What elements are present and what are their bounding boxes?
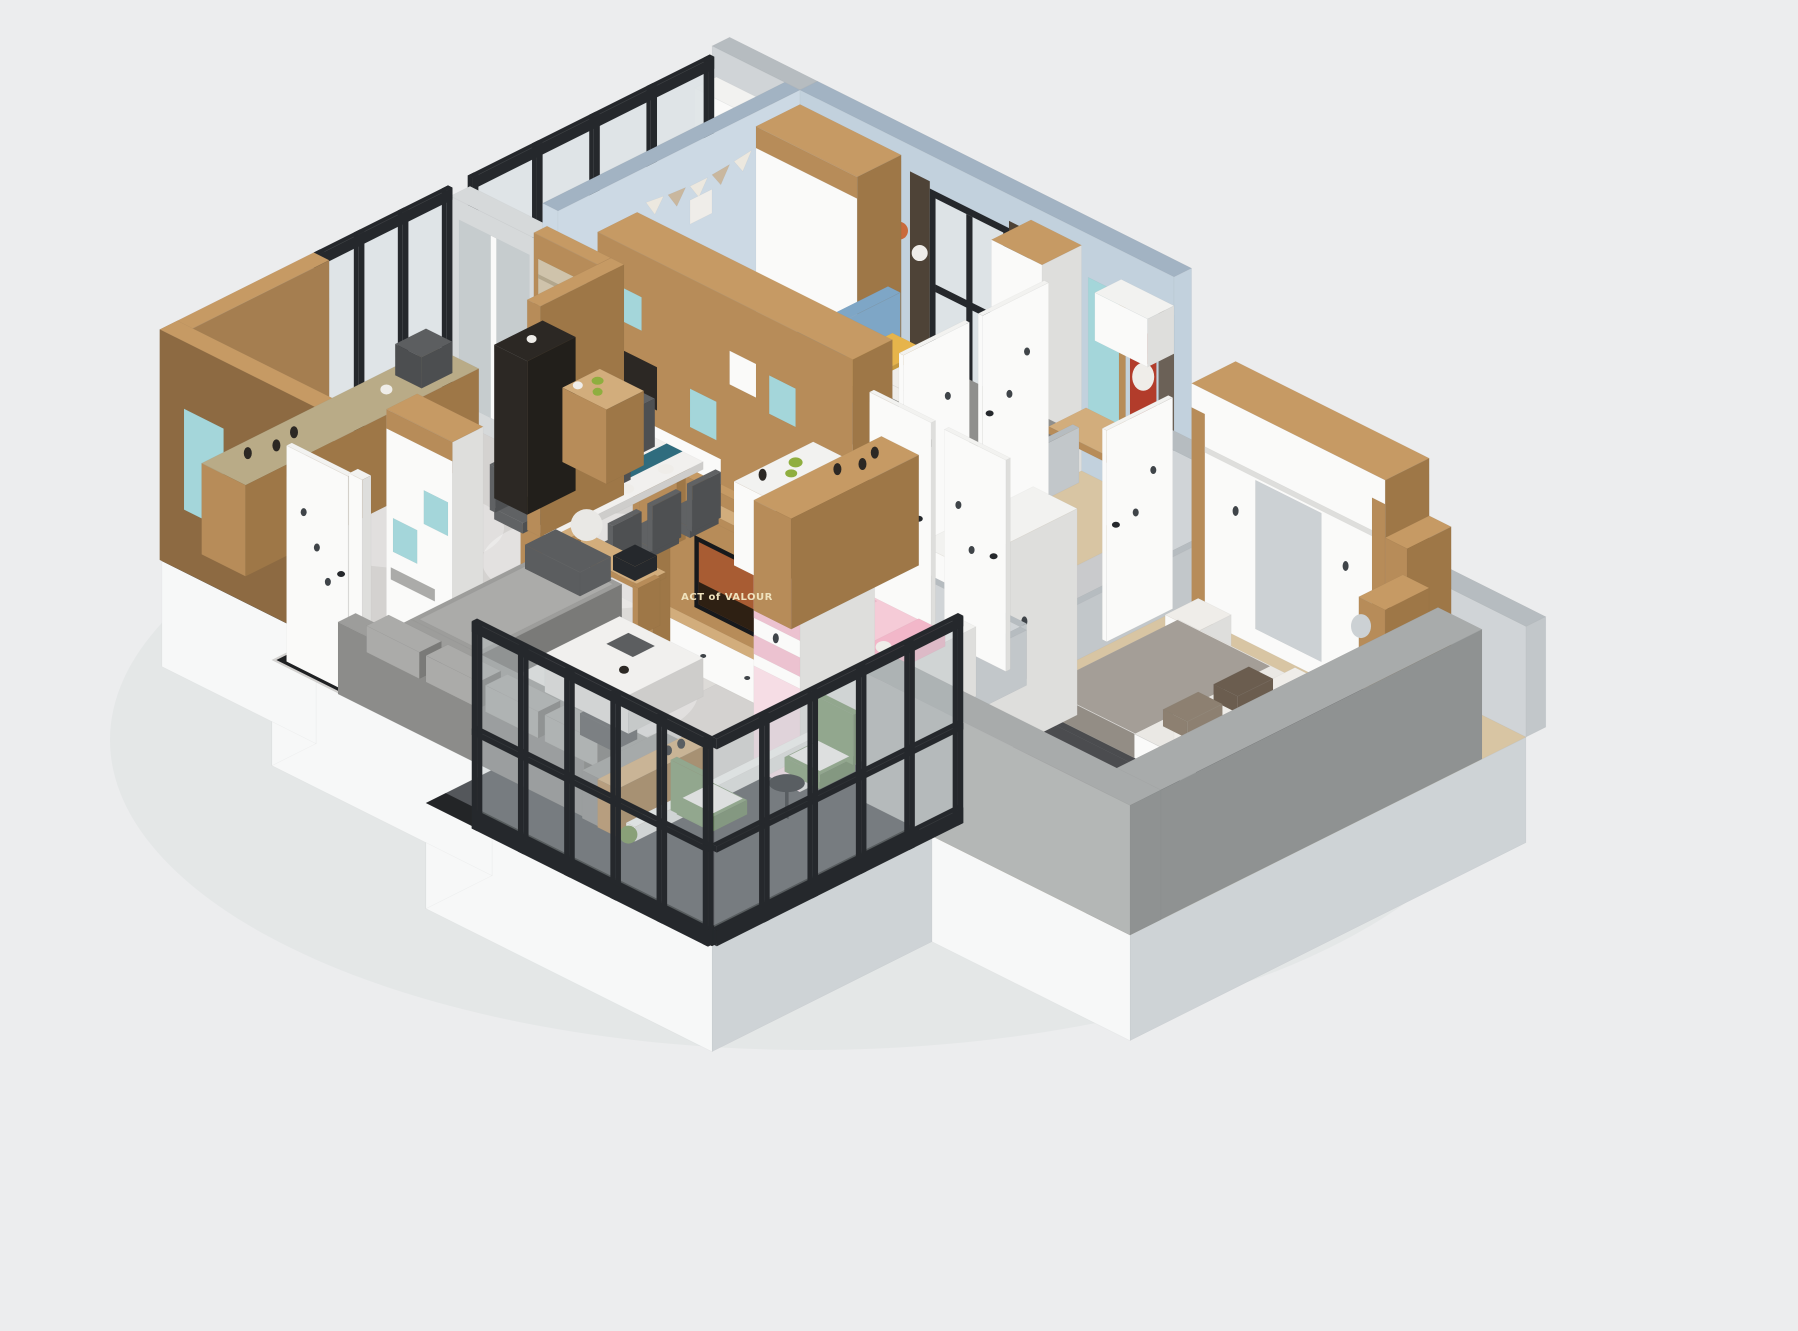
door-leaf-decal xyxy=(1150,466,1156,474)
wardrobe-handle xyxy=(1233,506,1239,516)
door-handle xyxy=(986,410,994,416)
bar-bottle xyxy=(858,458,866,470)
teapot xyxy=(573,381,583,389)
door-leaf-decal xyxy=(1024,348,1030,356)
coffee-table-cup xyxy=(619,666,629,674)
door-leaf-decal xyxy=(301,508,307,516)
kettle xyxy=(527,335,537,343)
door-leaf-decal xyxy=(325,578,331,586)
balcony-frame-post xyxy=(472,619,483,831)
counter-kettle xyxy=(380,384,392,394)
bar-bottle xyxy=(833,463,841,475)
door-leaf-decal xyxy=(945,392,951,400)
door-handle xyxy=(990,553,998,559)
apartment-3d-floorplan-render: ACT of VALOUR xyxy=(0,0,1798,1331)
place-setting xyxy=(658,464,674,474)
wall-hex-shelf xyxy=(912,245,928,261)
island-fruit xyxy=(789,457,803,467)
tea-table-fruit xyxy=(592,377,604,385)
wardrobe-handle xyxy=(773,633,779,643)
door-leaf-decal xyxy=(1133,508,1139,516)
wardrobe-wood-panel xyxy=(1192,407,1205,610)
tea-table-fruit xyxy=(593,388,603,396)
door-leaf-decal xyxy=(314,544,320,552)
balcony-frame-post xyxy=(953,614,964,826)
island-fruit xyxy=(785,469,797,477)
tv-poster-title: ACT of VALOUR xyxy=(681,592,773,603)
rhino-poster-figure xyxy=(1132,363,1154,391)
wine-bottle xyxy=(244,447,252,459)
door-leaf-decal xyxy=(955,501,961,509)
door-leaf-decal xyxy=(969,546,975,554)
tv-unit-handle xyxy=(744,676,750,680)
globe-lamp xyxy=(571,509,603,541)
bar-bottle xyxy=(871,447,879,459)
wine-bottle xyxy=(272,439,280,451)
island-bottle xyxy=(759,469,767,481)
wine-bottle xyxy=(290,426,298,438)
door-handle xyxy=(1112,522,1120,528)
door-leaf-decal xyxy=(1006,390,1012,398)
vanity-mirror xyxy=(1351,614,1371,638)
wardrobe-handle xyxy=(1343,561,1349,571)
door-handle xyxy=(337,571,345,577)
hall-door xyxy=(1102,395,1172,641)
